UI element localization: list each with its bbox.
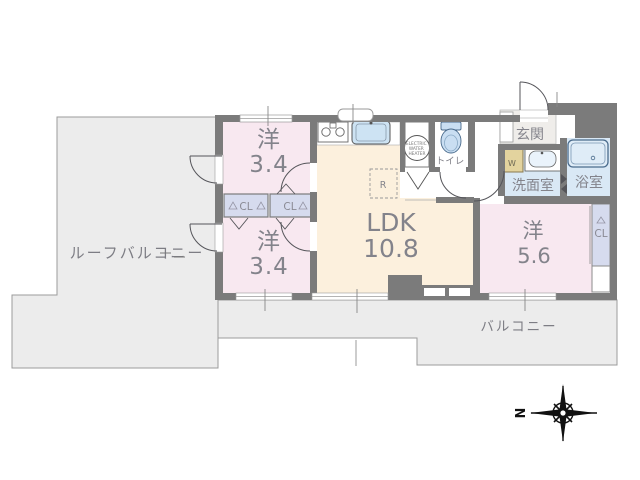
window-kitchen bbox=[338, 109, 373, 121]
kitchen bbox=[317, 121, 400, 145]
bedroom-right-area: 5.6 bbox=[517, 244, 550, 268]
washroom-label: 洗面室 bbox=[512, 177, 554, 194]
ldk-area: 10.8 bbox=[363, 234, 419, 263]
bedroom-top-label: 洋 bbox=[257, 127, 281, 153]
bathtub bbox=[568, 140, 608, 167]
window-ldk-pane bbox=[449, 288, 470, 296]
toilet-bowl bbox=[441, 129, 461, 153]
door-toilet bbox=[440, 167, 466, 172]
wall-window-pillar bbox=[388, 275, 422, 293]
floorplan-page: ルーフバルコニー バルコニー CL CL CL bbox=[0, 0, 640, 480]
door-bedroom-bottom bbox=[310, 222, 317, 251]
compass-north-letter: N bbox=[514, 408, 529, 419]
wall-entrance-right bbox=[548, 103, 577, 115]
compass: N bbox=[514, 384, 597, 442]
bedroom-top-area: 3.4 bbox=[249, 152, 289, 178]
window-ldk-pane bbox=[424, 288, 445, 296]
floorplan-drawing: ルーフバルコニー バルコニー CL CL CL bbox=[0, 0, 640, 480]
washer-label: W bbox=[508, 159, 516, 168]
balcony: バルコニー bbox=[218, 300, 617, 366]
bedroom-right-label: 洋 bbox=[523, 219, 544, 243]
closet-bedroom-right-lower-box bbox=[592, 266, 610, 292]
closet-bedroom-right-label: CL bbox=[594, 228, 607, 240]
wall-bedrooms-ldk bbox=[310, 122, 317, 293]
ldk-label: LDK bbox=[366, 208, 416, 237]
closet-bedroom-right: CL bbox=[590, 204, 610, 292]
closet-hall-right-label: CL bbox=[283, 201, 296, 213]
compass-hub-center bbox=[560, 410, 565, 415]
wall-corridor-bottom bbox=[436, 197, 474, 203]
stove bbox=[318, 122, 348, 142]
bathroom-fixtures bbox=[568, 140, 608, 167]
wall-toilet-left bbox=[429, 115, 435, 172]
closet-hall-left-label: CL bbox=[239, 201, 252, 213]
vanity-faucet bbox=[541, 152, 544, 155]
wall-toilet-right bbox=[468, 115, 475, 172]
door-bedroom-top bbox=[310, 163, 317, 192]
entrance-label: 玄関 bbox=[516, 126, 544, 143]
water-heater-label: ELECTRIC WATER HEATER bbox=[406, 141, 428, 157]
door-roofbalcony-top bbox=[215, 155, 223, 184]
toilet-label: トイレ bbox=[436, 156, 465, 167]
wall-south-of-washroom bbox=[504, 196, 617, 204]
closet-hall-right: CL bbox=[270, 194, 314, 217]
roof-balcony-deck bbox=[12, 117, 218, 368]
balcony-label: バルコニー bbox=[480, 319, 557, 335]
closet-hall-left: CL bbox=[224, 194, 268, 217]
washroom-fixtures: W bbox=[502, 148, 561, 172]
wall-bedroom-right-left bbox=[473, 198, 480, 293]
door-roofbalcony-bottom bbox=[215, 223, 223, 252]
wall-heater-left bbox=[400, 115, 405, 172]
entrance-opening bbox=[520, 103, 548, 122]
refrigerator-label: R bbox=[380, 180, 387, 191]
wall-washroom-top bbox=[498, 144, 565, 150]
bedroom-bottom-area: 3.4 bbox=[249, 254, 289, 280]
bedroom-bottom-label: 洋 bbox=[257, 229, 281, 255]
bathroom-label: 浴室 bbox=[575, 174, 603, 191]
roof-balcony: ルーフバルコニー bbox=[12, 117, 218, 368]
roof-balcony-label: ルーフバルコニー bbox=[70, 244, 205, 262]
wall-left bbox=[215, 115, 223, 300]
